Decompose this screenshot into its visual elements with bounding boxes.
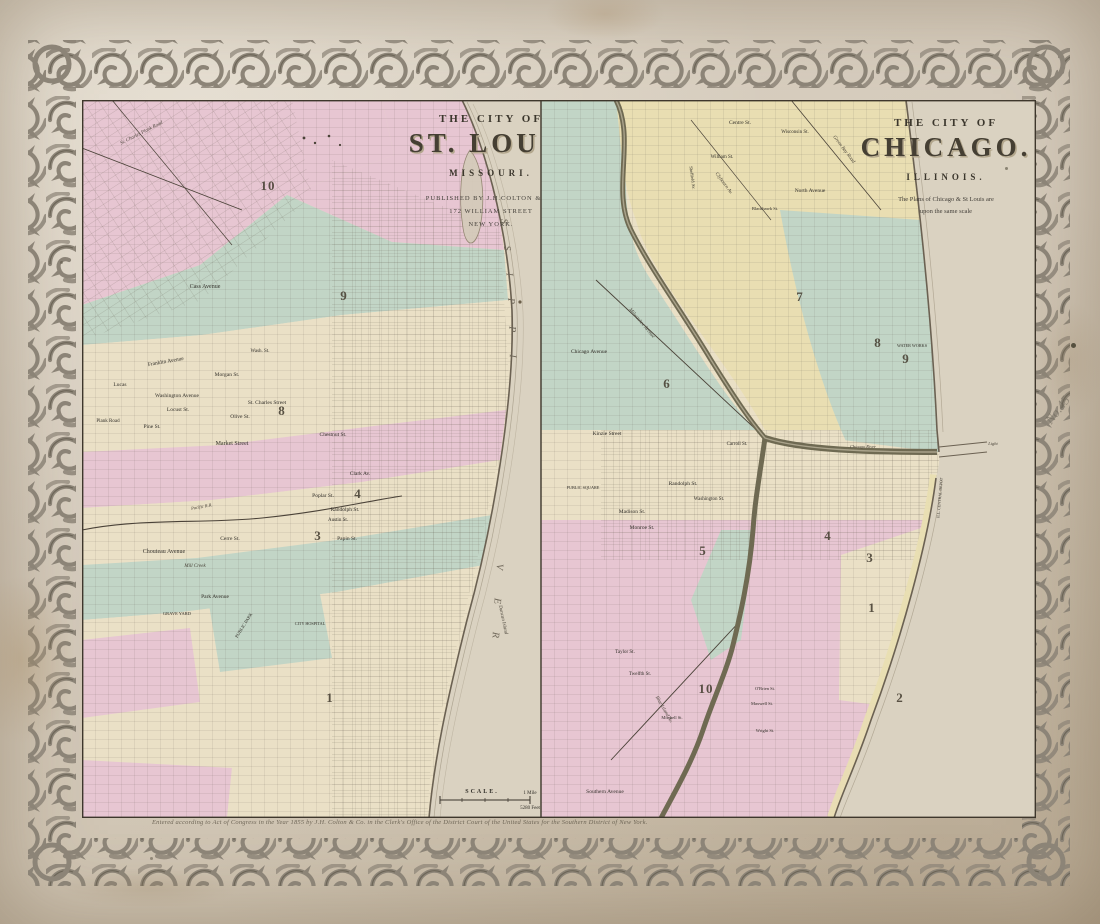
chicago-panel: THE CITY OF CHICAGO. CHICAGO. ILLINOIS. …: [523, 100, 1036, 818]
street-label: Taylor St.: [615, 650, 635, 655]
street-label: Chicago River: [850, 444, 876, 449]
street-label: Chicago Avenue: [571, 349, 608, 355]
ward-number: 8: [278, 403, 286, 418]
street-label: Chestnut St.: [320, 432, 348, 438]
street-label: Cerre St.: [220, 536, 240, 542]
street-label: Olive St.: [230, 414, 250, 420]
map-panels: THE CITY OF ST. LOUIS ST. LOUIS MISSOURI…: [82, 100, 1036, 818]
street-label: Locust St.: [167, 407, 190, 413]
ward-number: 2: [896, 690, 904, 705]
street-label: Monroe St.: [630, 525, 655, 531]
stlouis-publisher-1: PUBLISHED BY J.H.COLTON & Co.: [426, 195, 556, 202]
chicago-note-2: upon the same scale: [920, 208, 972, 215]
street-label: O'Brien St.: [755, 686, 775, 691]
street-label: GRAVE YARD: [163, 611, 192, 616]
ward-number: 4: [824, 528, 832, 543]
ward-number: 5: [699, 543, 707, 558]
chicago-title: CHICAGO.: [861, 132, 1032, 162]
street-label: Blackhawk St.: [752, 206, 778, 211]
street-label: Maxwell St.: [751, 701, 773, 706]
street-label: Pine St.: [143, 424, 161, 430]
street-label: Randolph St.: [669, 481, 698, 487]
street-label: Austin St.: [328, 518, 348, 523]
street-label: Mitchell St.: [661, 715, 682, 720]
ward-number: 7: [796, 289, 804, 304]
street-label: Kinzie Street: [593, 431, 622, 437]
street-label: Papin St.: [337, 536, 357, 542]
street-label: North Avenue: [795, 188, 826, 194]
street-label: Mill Creek: [183, 564, 206, 569]
street-label: Chouteau Avenue: [143, 549, 186, 555]
stlouis-panel: THE CITY OF ST. LOUIS ST. LOUIS MISSOURI…: [82, 100, 575, 818]
scale-feet: 5280 Feet: [520, 806, 540, 811]
stlouis-title-prefix: THE CITY OF: [439, 113, 543, 125]
street-label: Washington Avenue: [155, 393, 199, 399]
ward-number: 4: [354, 486, 362, 501]
ward-number: 10: [699, 681, 714, 696]
ward-number: 6: [663, 376, 671, 391]
scale-title: SCALE.: [465, 789, 499, 795]
ward-number: 9: [340, 288, 348, 303]
chicago-title-prefix: THE CITY OF: [894, 117, 998, 129]
ward-number: 3: [314, 528, 322, 543]
street-label: Lucas: [113, 382, 126, 388]
copyright-line: Entered according to Act of Congress in …: [152, 819, 802, 826]
street-label: Randolph St.: [331, 507, 360, 513]
street-label: Carroll St.: [727, 442, 748, 447]
ward-number: 10: [261, 178, 276, 193]
street-label: CITY HOSPITAL: [295, 621, 326, 626]
street-label: Wash. St.: [251, 349, 270, 354]
street-label: Clark Av.: [350, 471, 371, 477]
street-label: Morgan St.: [215, 372, 240, 378]
stlouis-state: MISSOURI.: [449, 168, 533, 178]
atlas-sheet: { "page": { "plate_number": "No.45", "co…: [0, 0, 1100, 924]
street-label: Twelfth St.: [629, 672, 651, 677]
street-label: Madison St.: [619, 509, 646, 515]
street-label: PUBLIC SQUARE: [567, 485, 600, 490]
street-label: WATER WORKS: [897, 343, 928, 348]
street-label: William St.: [711, 155, 734, 160]
street-label: Wisconsin St.: [781, 130, 809, 135]
street-label: Park Avenue: [201, 594, 229, 600]
stlouis-publisher-2: 172 WILLIAM STREET: [449, 208, 533, 215]
street-label: Washington St.: [694, 497, 724, 502]
chicago-state: ILLINOIS.: [906, 172, 985, 182]
street-label: Plank Road: [96, 419, 120, 424]
street-label: Market Street: [216, 441, 249, 447]
ward-number: 9: [902, 351, 910, 366]
street-label: Southern Avenue: [586, 789, 624, 795]
chicago-note-1: The Plans of Chicago & St Louis are: [898, 196, 994, 203]
ward-number: 1: [868, 600, 876, 615]
street-label: Poplar St.: [312, 493, 334, 499]
scale-mile: 1 Mile: [523, 791, 537, 796]
street-label: Wright St.: [756, 728, 775, 733]
ward-number: 3: [866, 550, 874, 565]
street-label: Light: [987, 441, 998, 446]
street-label: Centre St.: [729, 120, 752, 126]
street-label: Cass Avenue: [190, 284, 221, 290]
ward-number: 8: [874, 335, 882, 350]
ward-number: 1: [326, 690, 334, 705]
